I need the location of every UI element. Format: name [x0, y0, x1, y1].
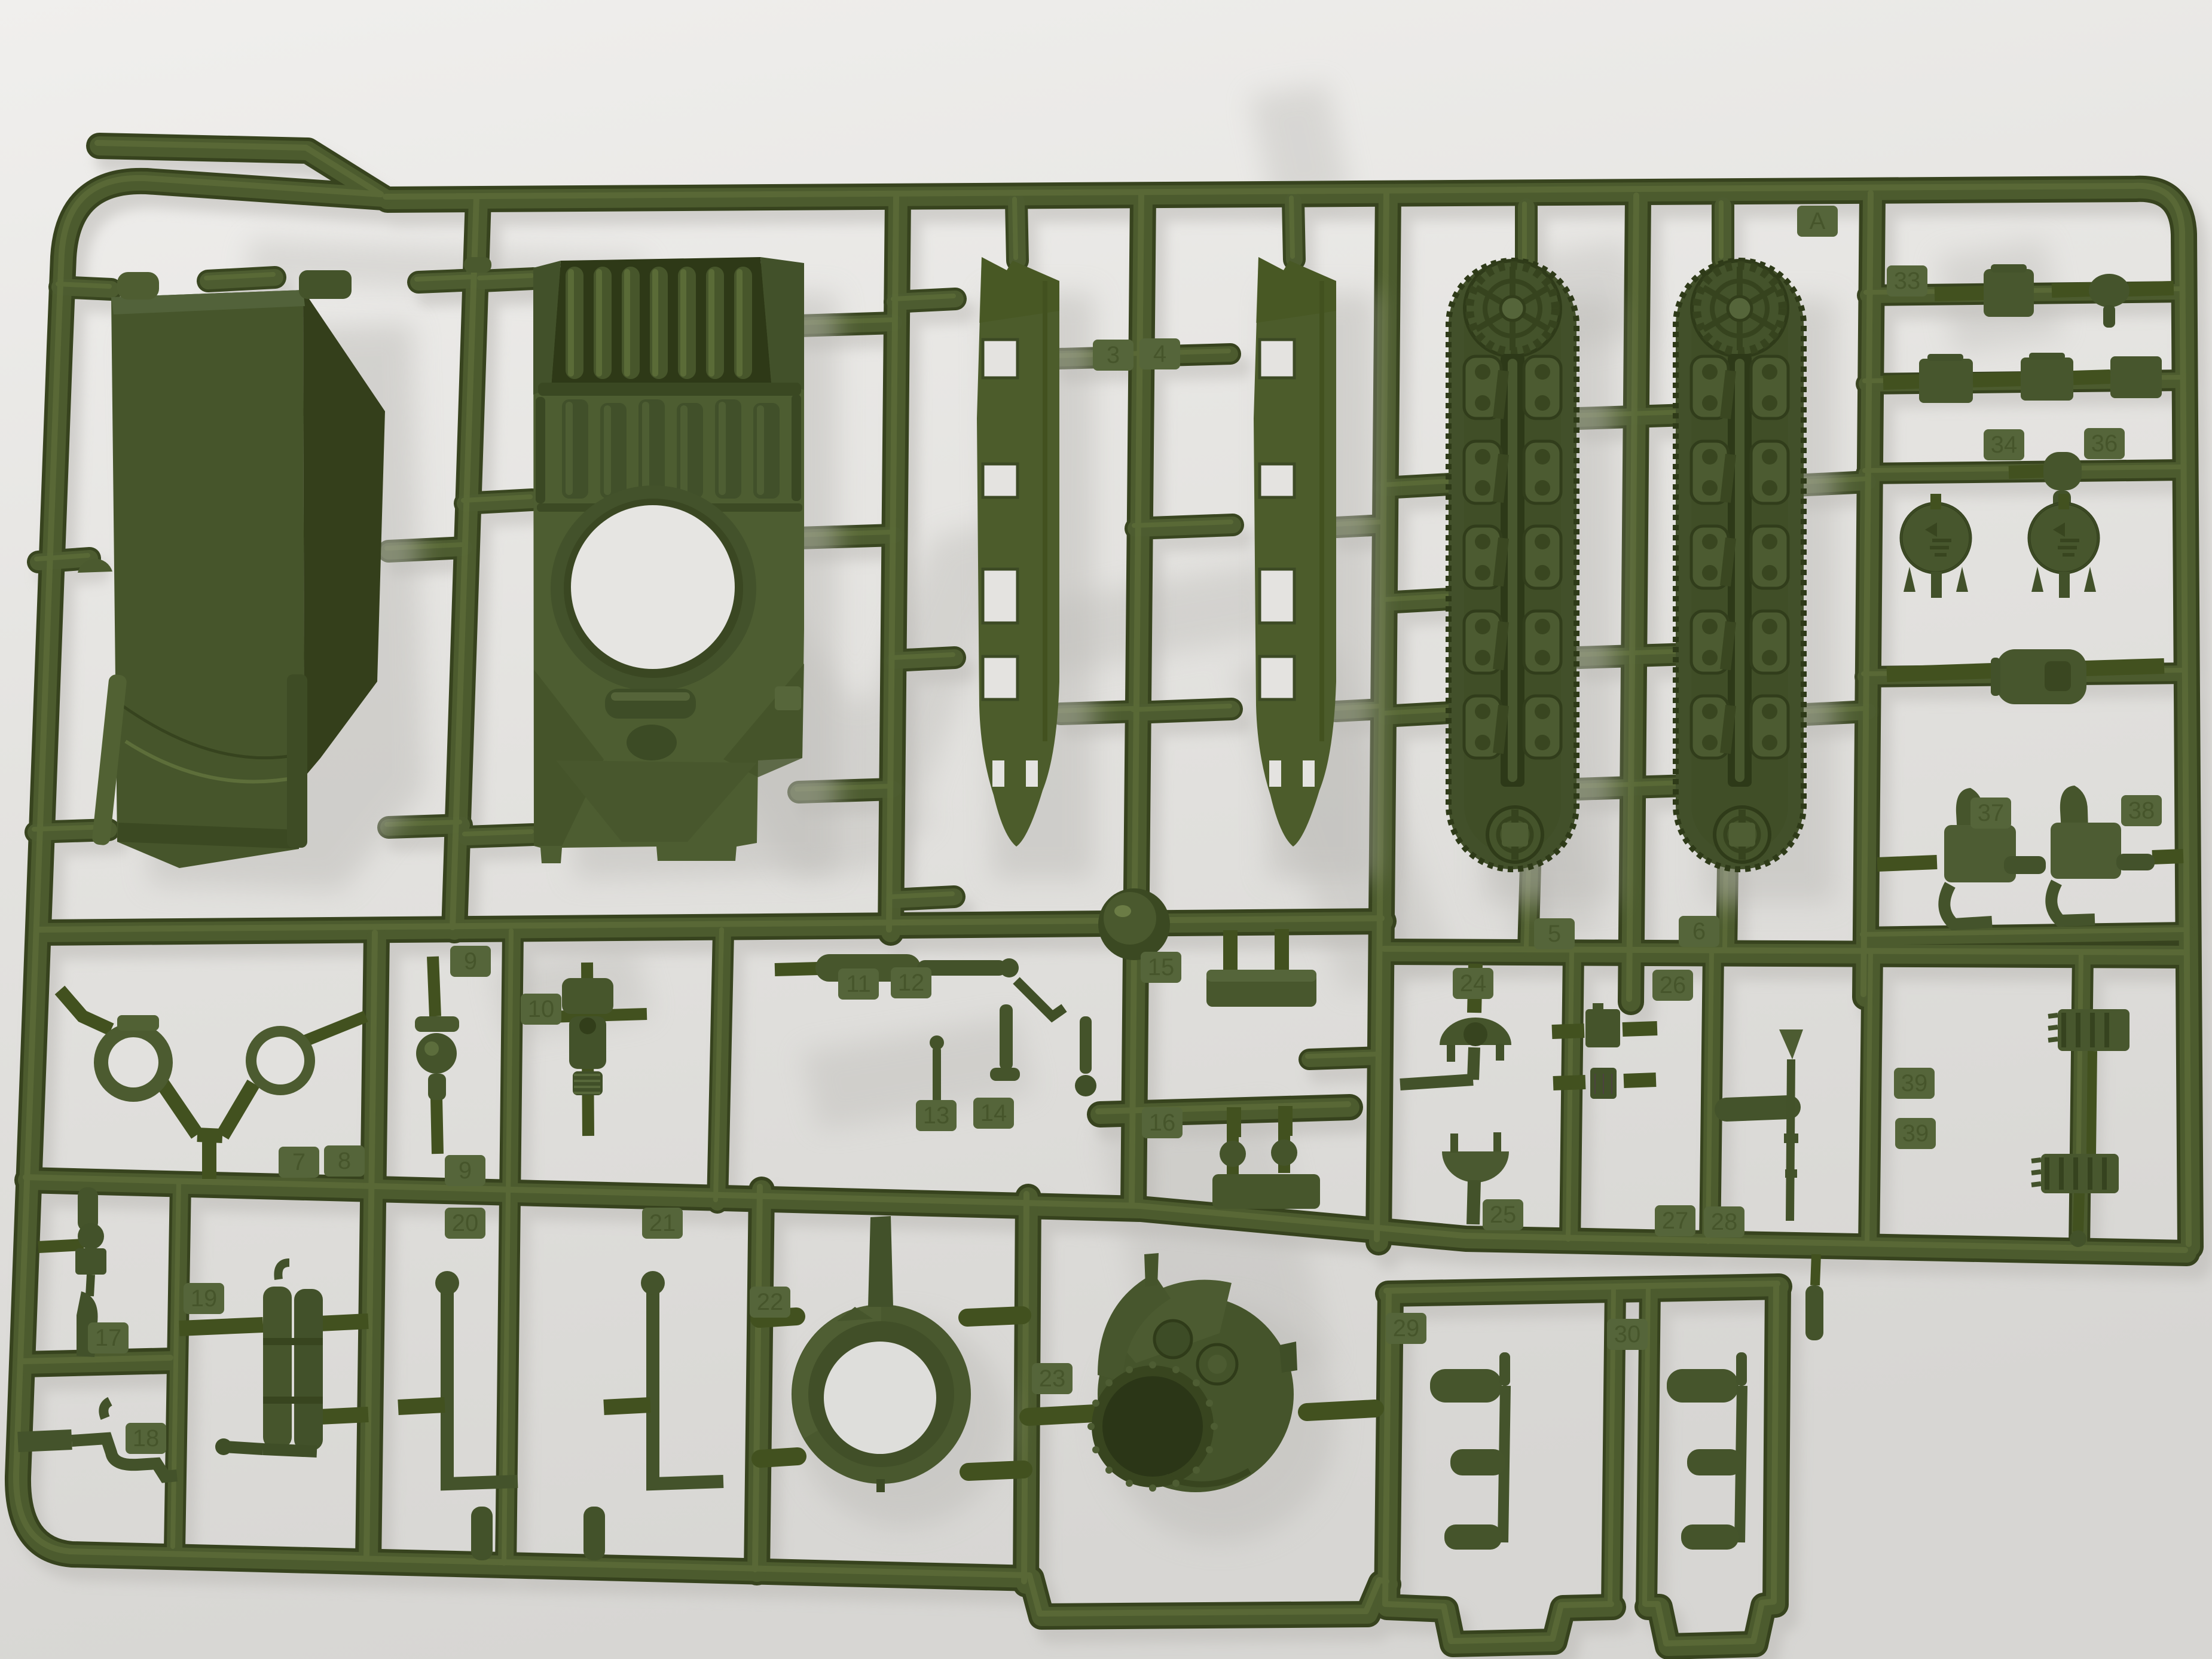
svg-text:27: 27: [1662, 1208, 1689, 1234]
svg-text:7: 7: [292, 1149, 305, 1175]
svg-text:5: 5: [1548, 921, 1561, 947]
svg-text:19: 19: [191, 1285, 218, 1312]
svg-text:30: 30: [1614, 1321, 1641, 1348]
svg-text:29: 29: [1393, 1315, 1420, 1342]
svg-text:14: 14: [980, 1100, 1007, 1126]
svg-text:9: 9: [464, 948, 477, 974]
svg-text:34: 34: [1991, 432, 2018, 458]
svg-text:9: 9: [459, 1157, 472, 1184]
svg-text:25: 25: [1490, 1202, 1517, 1228]
svg-text:13: 13: [923, 1102, 950, 1129]
svg-text:28: 28: [1711, 1209, 1738, 1235]
svg-text:23: 23: [1039, 1365, 1066, 1392]
svg-text:24: 24: [1460, 970, 1487, 997]
svg-text:18: 18: [133, 1425, 160, 1452]
svg-text:36: 36: [2091, 430, 2118, 457]
svg-text:26: 26: [1660, 972, 1687, 998]
svg-text:8: 8: [338, 1148, 351, 1174]
svg-text:16: 16: [1149, 1110, 1176, 1136]
svg-text:37: 37: [1978, 800, 2005, 826]
svg-text:6: 6: [1692, 918, 1706, 945]
svg-text:17: 17: [95, 1325, 122, 1351]
svg-text:33: 33: [1894, 268, 1921, 294]
svg-text:12: 12: [898, 970, 925, 996]
svg-text:4: 4: [1153, 341, 1166, 367]
svg-text:11: 11: [846, 971, 871, 997]
svg-text:A: A: [1810, 208, 1826, 234]
svg-text:39: 39: [1902, 1120, 1929, 1147]
svg-text:3: 3: [1107, 342, 1120, 368]
svg-text:20: 20: [452, 1210, 479, 1236]
svg-text:10: 10: [528, 996, 555, 1022]
svg-text:38: 38: [2128, 798, 2155, 824]
svg-text:39: 39: [1901, 1070, 1928, 1096]
svg-text:15: 15: [1148, 954, 1175, 980]
svg-text:22: 22: [757, 1289, 784, 1315]
svg-text:21: 21: [649, 1210, 676, 1236]
